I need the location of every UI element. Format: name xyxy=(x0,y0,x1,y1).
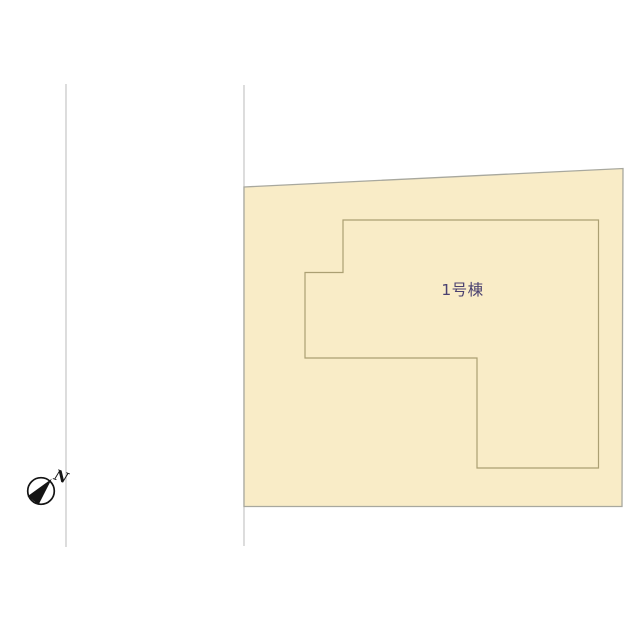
site-plan-canvas: 1号棟 N xyxy=(0,0,640,640)
building-label: 1号棟 xyxy=(441,281,483,299)
compass-north-label: N xyxy=(51,466,72,488)
compass-icon: N xyxy=(28,466,72,505)
site-plan-drawing: 1号棟 N xyxy=(0,0,640,640)
lot-polygon xyxy=(244,169,623,507)
